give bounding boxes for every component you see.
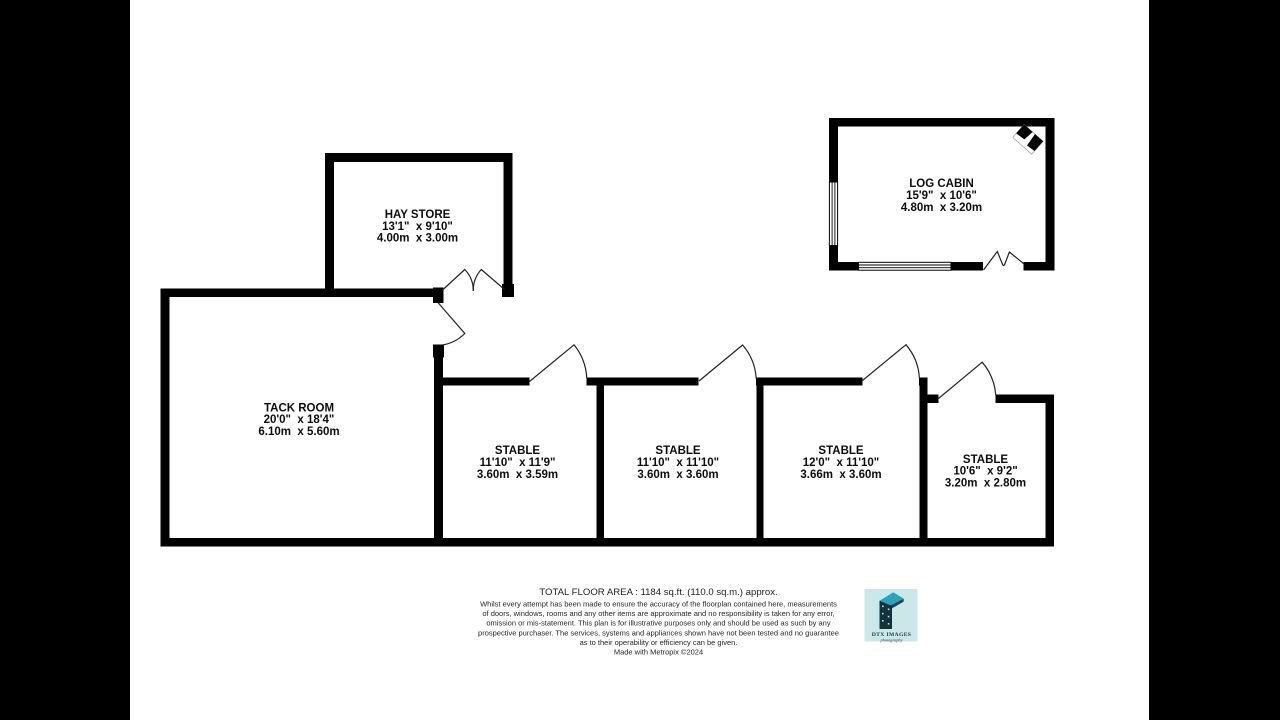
svg-text:omission or mis-statement. Thi: omission or mis-statement. This plan is …: [486, 619, 830, 628]
svg-text:TACK ROOM: TACK ROOM: [264, 402, 334, 414]
svg-text:of doors, windows, rooms and a: of doors, windows, rooms and any other i…: [482, 609, 834, 618]
svg-text:6.10m x 5.60m: 6.10m x 5.60m: [258, 426, 339, 438]
svg-text:15'9" x 10'6": 15'9" x 10'6": [906, 190, 977, 202]
svg-text:3.20m x 2.80m: 3.20m x 2.80m: [945, 477, 1026, 489]
svg-text:TOTAL FLOOR AREA : 1184 sq.ft.: TOTAL FLOOR AREA : 1184 sq.ft. (110.0 sq…: [539, 587, 777, 598]
svg-text:HAY STORE: HAY STORE: [385, 209, 451, 221]
svg-text:STABLE: STABLE: [655, 445, 700, 457]
svg-text:4.00m x 3.00m: 4.00m x 3.00m: [377, 233, 458, 245]
svg-text:20'0" x 18'4": 20'0" x 18'4": [264, 414, 335, 426]
svg-text:11'10" x 11'10": 11'10" x 11'10": [637, 457, 719, 469]
svg-text:Made with Metropix ©2024: Made with Metropix ©2024: [614, 647, 703, 656]
svg-text:11'10" x 11'9": 11'10" x 11'9": [480, 457, 556, 469]
svg-text:10'6" x 9'2": 10'6" x 9'2": [953, 466, 1017, 478]
svg-text:3.60m x 3.60m: 3.60m x 3.60m: [637, 469, 718, 481]
svg-text:STABLE: STABLE: [963, 454, 1008, 466]
svg-text:photography: photography: [880, 638, 903, 643]
svg-text:STABLE: STABLE: [495, 445, 540, 457]
svg-text:as to their operability or eff: as to their operability or efficiency ca…: [580, 638, 738, 647]
svg-text:3.66m x 3.60m: 3.66m x 3.60m: [800, 469, 881, 481]
svg-text:LOG CABIN: LOG CABIN: [909, 178, 974, 190]
svg-text:3.60m x 3.59m: 3.60m x 3.59m: [477, 469, 558, 481]
svg-text:12'0" x 11'10": 12'0" x 11'10": [803, 457, 880, 469]
svg-text:prospective purchaser. The ser: prospective purchaser. The services, sys…: [478, 628, 839, 637]
svg-text:Whilst every attempt has been: Whilst every attempt has been made to en…: [480, 600, 837, 609]
svg-text:4.80m x 3.20m: 4.80m x 3.20m: [901, 202, 982, 214]
svg-text:13'1" x 9'10": 13'1" x 9'10": [382, 221, 453, 233]
svg-text:STABLE: STABLE: [818, 445, 863, 457]
